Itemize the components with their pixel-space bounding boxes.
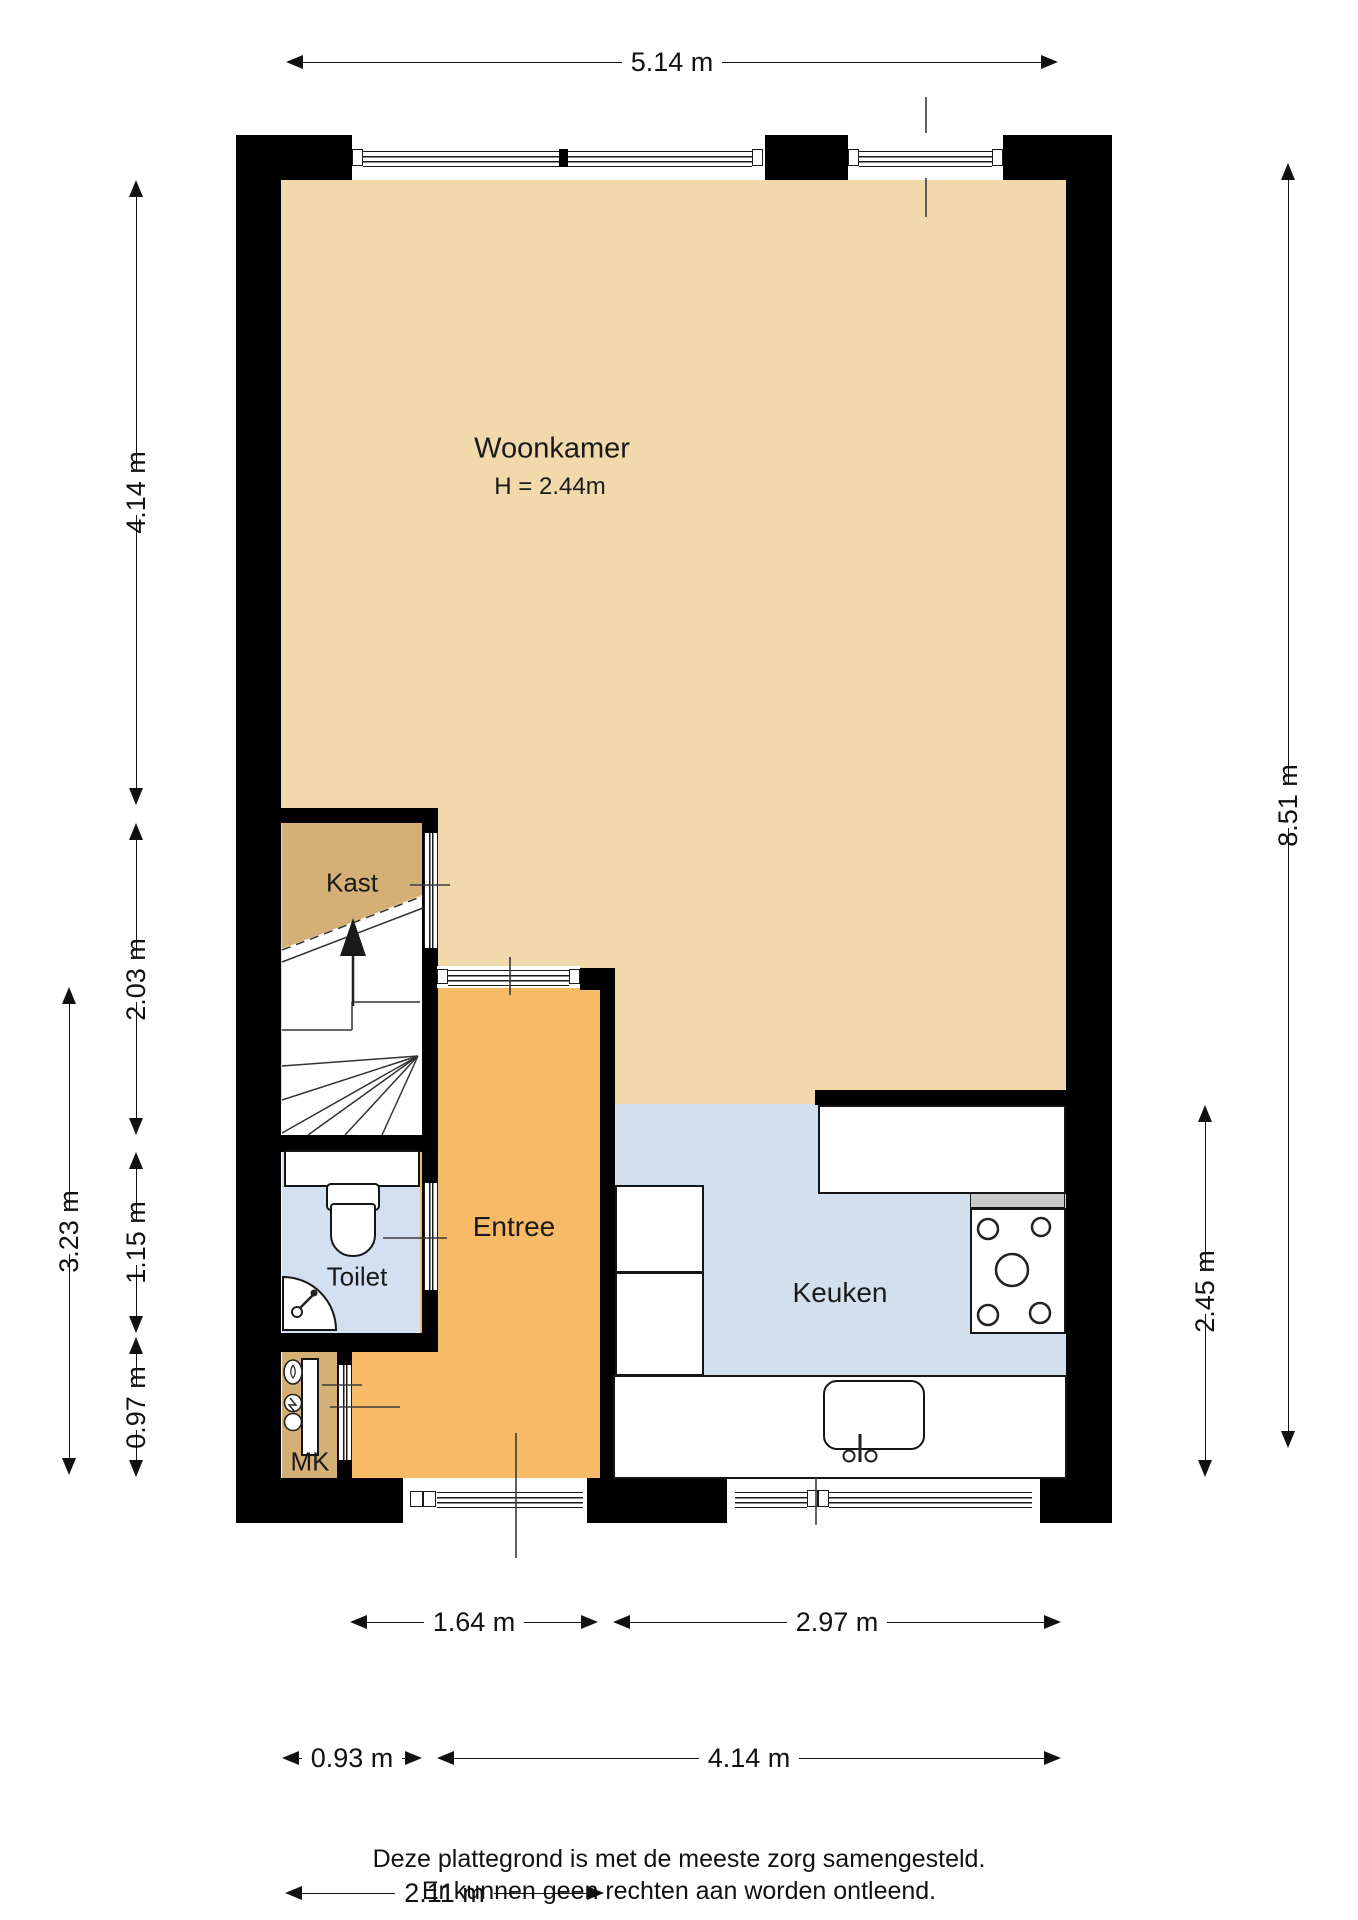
wall-bottom-right: [1040, 1478, 1112, 1523]
toilet-shelf: [284, 1150, 420, 1187]
wall-bottom-mid: [587, 1478, 727, 1523]
wall-kitchen-top: [815, 1090, 1066, 1105]
wall-left: [236, 135, 281, 1523]
mk-door: [338, 1365, 352, 1460]
kitchen-counter-top: [818, 1105, 1066, 1194]
kitchen-cabinet-lower: [615, 1272, 704, 1376]
kitchen-counter-edge: [970, 1193, 1065, 1208]
wall-right: [1066, 135, 1112, 1523]
kast-door: [424, 833, 438, 948]
window-top-left-glass-2: [568, 151, 752, 167]
window-cap: [437, 969, 448, 984]
room-label-kast: Kast: [326, 868, 378, 899]
window-cap: [569, 969, 580, 984]
floor-plan-page: Woonkamer H = 2.44m Kast Entree Toilet K…: [0, 0, 1358, 1920]
toilet-door: [424, 1183, 438, 1290]
room-label-entree: Entree: [473, 1211, 556, 1243]
window-top-right-glass: [859, 151, 992, 167]
dim-total-depth: 8.51 m: [1274, 163, 1302, 1448]
kitchen-cabinet-upper: [615, 1185, 704, 1273]
dim-interior-width: 4.14 m: [437, 1744, 1061, 1772]
room-height-label: H = 2.44m: [494, 473, 605, 501]
wall-toilet-south: [281, 1333, 435, 1352]
dim-keuken-width: 2.97 m: [613, 1608, 1061, 1636]
window-cap: [818, 1490, 829, 1507]
dim-woonkamer-depth: 4.14 m: [122, 180, 150, 805]
dim-hall-depth-total: 3.23 m: [55, 987, 83, 1475]
window-cap: [752, 149, 763, 166]
window-kitchen-glass-1: [735, 1492, 807, 1508]
dim-mk-depth: 0.97 m: [122, 1337, 150, 1477]
kitchen-sink: [823, 1380, 925, 1450]
front-door-cap: [423, 1491, 436, 1507]
front-door-leaf: [437, 1492, 583, 1508]
footer-disclaimer-line2: Er kunnen geen rechten aan worden ontlee…: [0, 1877, 1358, 1906]
dim-stairs-depth: 2.03 m: [122, 823, 150, 1135]
wall-kast-top: [281, 808, 438, 823]
footer-disclaimer-line1: Deze plattegrond is met de meeste zorg s…: [0, 1845, 1358, 1874]
dim-entree-width: 1.64 m: [350, 1608, 598, 1636]
mk-meter-board: [301, 1358, 319, 1456]
window-cap: [848, 149, 859, 166]
dim-total-width: 5.14 m: [286, 48, 1058, 76]
room-label-toilet: Toilet: [327, 1262, 388, 1293]
window-cap: [992, 149, 1003, 166]
window-interior-glass: [448, 970, 569, 986]
window-top-left-glass-1: [363, 151, 559, 167]
toilet-bowl-icon: [330, 1203, 376, 1257]
window-cap: [807, 1490, 818, 1507]
room-label-woonkamer: Woonkamer: [474, 433, 630, 466]
cooktop: [970, 1208, 1066, 1334]
front-door-cap: [410, 1491, 423, 1507]
dim-keuken-depth: 2.45 m: [1191, 1105, 1219, 1477]
room-label-mk: MK: [291, 1447, 330, 1478]
room-label-keuken: Keuken: [793, 1277, 888, 1309]
dim-toilet-width: 0.93 m: [282, 1744, 422, 1772]
wall-top-pier-mid: [765, 135, 848, 180]
wall-bottom-left: [236, 1478, 403, 1523]
dim-toilet-depth: 1.15 m: [122, 1152, 150, 1333]
window-cap: [352, 149, 363, 166]
window-kitchen-glass-2: [829, 1492, 1032, 1508]
window-top-mullion: [559, 149, 568, 167]
